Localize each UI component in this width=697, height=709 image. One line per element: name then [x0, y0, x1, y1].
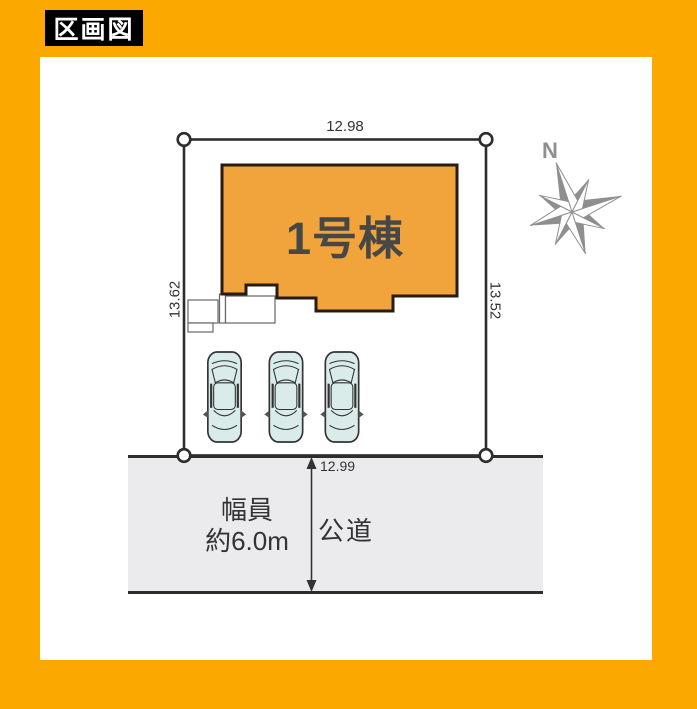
- plot-map-frame: 区画図 12.98 13.62 13.52 12.99 1号棟 幅員 約6.0m…: [0, 0, 697, 709]
- road-width-label: 幅員 約6.0m: [192, 495, 302, 556]
- dimension-left: 13.62: [167, 270, 184, 330]
- dimension-bottom: 12.99: [320, 458, 355, 474]
- compass-rose-icon: [514, 146, 635, 267]
- dimension-right: 13.52: [487, 271, 504, 331]
- dimension-top: 12.98: [310, 118, 380, 135]
- car-2: [264, 352, 307, 442]
- road-name-label: 公道: [318, 511, 374, 548]
- car-1: [203, 352, 246, 442]
- road-width-line1: 幅員: [221, 495, 273, 525]
- map-title: 区画図: [45, 10, 143, 46]
- car-3: [320, 352, 363, 442]
- map-title-text: 区画図: [53, 10, 134, 46]
- road-width-line2: 約6.0m: [205, 526, 289, 556]
- compass-north-label: N: [538, 138, 562, 164]
- building-label: 1号棟: [245, 202, 445, 267]
- entrance-porch: [188, 294, 275, 332]
- site-plan-drawing: [0, 0, 697, 709]
